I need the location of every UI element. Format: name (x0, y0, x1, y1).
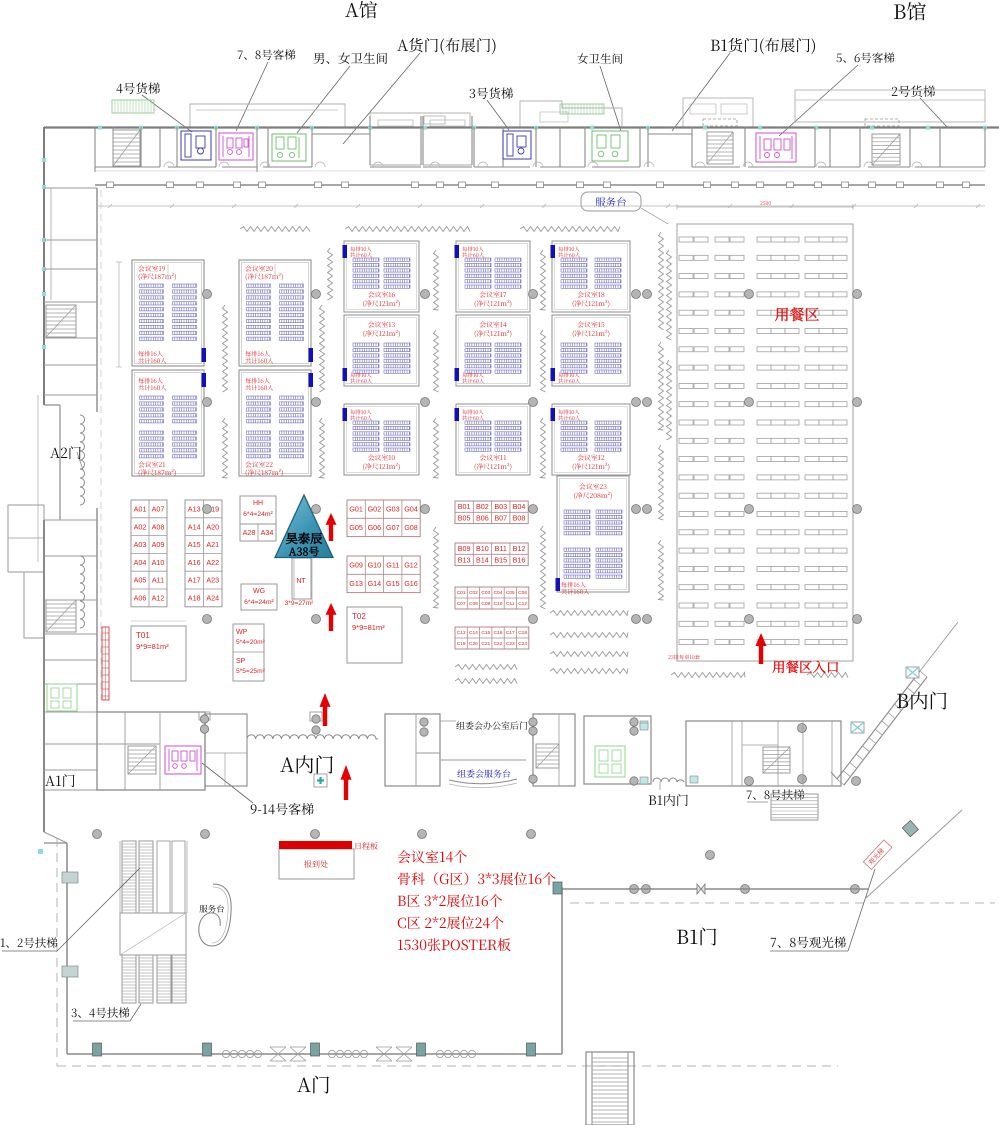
svg-text:6*4=24m²: 6*4=24m² (243, 511, 273, 518)
svg-text:A03: A03 (134, 540, 147, 549)
svg-text:A28: A28 (243, 528, 256, 537)
svg-text:B10: B10 (476, 544, 489, 553)
svg-text:G06: G06 (368, 523, 382, 532)
svg-text:C15: C15 (481, 630, 490, 636)
svg-text:NT: NT (296, 578, 306, 585)
svg-text:9*9=81m²: 9*9=81m² (352, 623, 385, 632)
svg-text:C14: C14 (469, 630, 478, 636)
svg-text:A10: A10 (152, 558, 165, 567)
svg-text:G13: G13 (349, 579, 363, 588)
svg-text:B09: B09 (458, 544, 471, 553)
svg-text:G10: G10 (368, 561, 382, 570)
svg-text:G01: G01 (349, 505, 363, 514)
svg-text:C01: C01 (457, 590, 466, 596)
svg-text:G07: G07 (386, 523, 400, 532)
svg-text:A17: A17 (188, 576, 201, 585)
svg-text:G04: G04 (404, 505, 418, 514)
svg-text:C12: C12 (518, 601, 527, 607)
svg-text:C13: C13 (457, 630, 466, 636)
svg-text:A09: A09 (152, 540, 165, 549)
svg-text:A15: A15 (188, 540, 201, 549)
svg-text:G02: G02 (368, 505, 382, 514)
svg-text:B08: B08 (513, 514, 526, 523)
svg-text:5*4=20m²: 5*4=20m² (236, 639, 266, 646)
svg-text:A20: A20 (206, 522, 219, 531)
svg-text:HH: HH (253, 500, 263, 507)
svg-text:A07: A07 (152, 505, 165, 514)
svg-text:A08: A08 (152, 522, 165, 531)
svg-text:T01: T01 (136, 631, 150, 640)
svg-text:C08: C08 (469, 601, 478, 607)
svg-text:G11: G11 (386, 561, 399, 570)
svg-text:G03: G03 (386, 505, 400, 514)
svg-text:T02: T02 (352, 612, 366, 621)
svg-text:G16: G16 (404, 579, 418, 588)
svg-text:B02: B02 (476, 502, 489, 511)
svg-text:G09: G09 (349, 561, 363, 570)
svg-text:WP: WP (236, 629, 248, 636)
svg-text:G14: G14 (368, 579, 382, 588)
svg-text:A24: A24 (206, 594, 219, 603)
svg-text:C21: C21 (481, 641, 490, 647)
svg-text:B03: B03 (494, 502, 507, 511)
svg-text:A12: A12 (152, 594, 165, 603)
svg-text:B01: B01 (458, 502, 471, 511)
svg-text:B05: B05 (458, 514, 471, 523)
svg-text:C23: C23 (506, 641, 515, 647)
svg-text:SP: SP (236, 658, 246, 665)
svg-text:B15: B15 (494, 556, 507, 565)
svg-text:3*9=27m²: 3*9=27m² (285, 600, 315, 607)
svg-text:C22: C22 (494, 641, 503, 647)
svg-text:A01: A01 (134, 505, 147, 514)
svg-text:B07: B07 (494, 514, 507, 523)
svg-text:A34: A34 (261, 528, 274, 537)
svg-text:A21: A21 (206, 540, 219, 549)
svg-text:B14: B14 (476, 556, 489, 565)
svg-text:G05: G05 (349, 523, 363, 532)
svg-text:G15: G15 (386, 579, 400, 588)
svg-text:A16: A16 (188, 558, 201, 567)
svg-text:WG: WG (253, 588, 265, 595)
svg-text:A23: A23 (206, 576, 219, 585)
svg-text:C10: C10 (494, 601, 503, 607)
svg-text:C03: C03 (481, 590, 490, 596)
svg-text:A06: A06 (134, 594, 147, 603)
svg-text:C11: C11 (506, 601, 515, 607)
svg-text:C20: C20 (469, 641, 478, 647)
svg-text:C02: C02 (469, 590, 478, 596)
svg-text:C04: C04 (494, 590, 503, 596)
svg-text:6*4=24m²: 6*4=24m² (244, 599, 274, 606)
svg-text:C09: C09 (481, 601, 490, 607)
svg-text:9*9=81m²: 9*9=81m² (136, 642, 169, 651)
svg-text:G12: G12 (404, 561, 418, 570)
svg-text:A04: A04 (134, 558, 147, 567)
svg-text:B11: B11 (495, 544, 507, 553)
svg-text:C07: C07 (457, 601, 466, 607)
svg-text:C16: C16 (494, 630, 503, 636)
svg-text:A13: A13 (188, 505, 201, 514)
svg-text:A14: A14 (188, 522, 201, 531)
svg-text:C17: C17 (506, 630, 515, 636)
svg-text:A02: A02 (134, 522, 147, 531)
svg-text:B12: B12 (513, 544, 526, 553)
svg-text:A22: A22 (206, 558, 219, 567)
svg-text:C19: C19 (457, 641, 466, 647)
svg-text:A18: A18 (188, 594, 201, 603)
svg-text:B13: B13 (458, 556, 471, 565)
svg-text:5*5=25m²: 5*5=25m² (236, 668, 266, 675)
svg-text:C24: C24 (518, 641, 527, 647)
svg-text:A05: A05 (134, 576, 147, 585)
svg-text:A11: A11 (152, 576, 164, 585)
svg-text:C05: C05 (506, 590, 515, 596)
svg-text:G08: G08 (404, 523, 418, 532)
svg-text:B16: B16 (513, 556, 526, 565)
svg-text:C06: C06 (518, 590, 527, 596)
svg-text:B04: B04 (513, 502, 526, 511)
svg-text:C18: C18 (518, 630, 527, 636)
svg-text:B06: B06 (476, 514, 489, 523)
